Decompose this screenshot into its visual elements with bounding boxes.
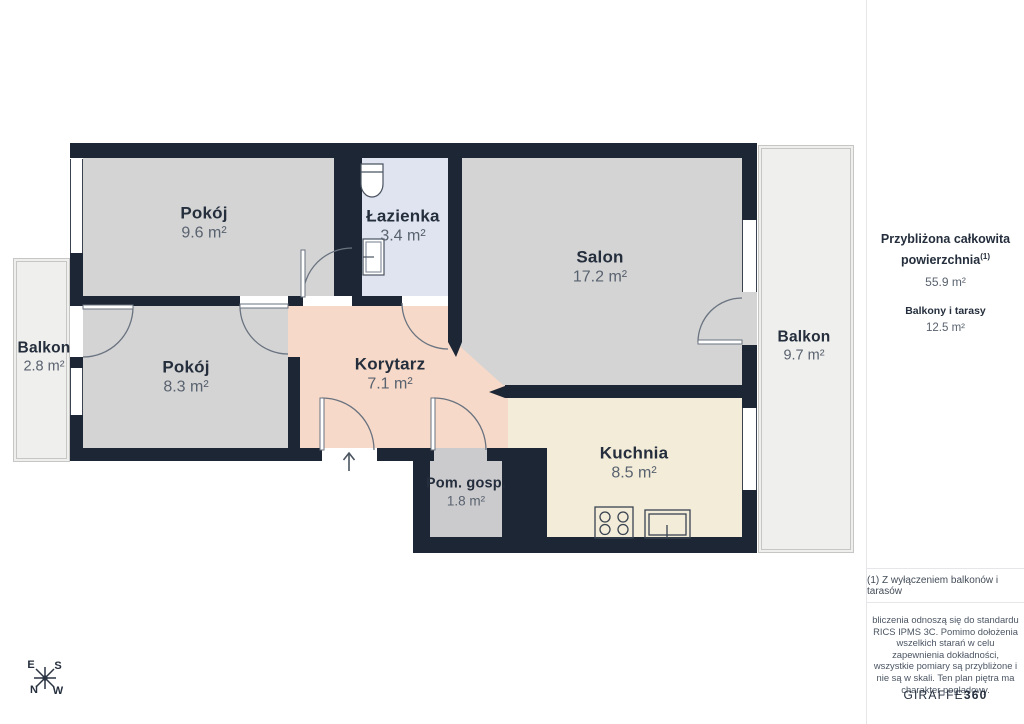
wall-segment bbox=[448, 158, 462, 342]
room-area: 9.6 m² bbox=[180, 224, 227, 244]
room-label-pom-gosp: Pom. gosp. 1.8 m² bbox=[426, 475, 506, 510]
room-label-salon: Salon 17.2 m² bbox=[573, 247, 627, 288]
wall-segment bbox=[288, 357, 300, 448]
door-opening bbox=[240, 296, 288, 306]
door-opening bbox=[70, 306, 83, 357]
room-label-lazienka: Łazienka 3.4 m² bbox=[366, 206, 439, 247]
compass-letter-n: N bbox=[26, 684, 42, 696]
room-name: Łazienka bbox=[366, 206, 439, 227]
wall-segment bbox=[334, 158, 362, 296]
wall-segment bbox=[742, 345, 757, 408]
room-area: 2.8 m² bbox=[18, 358, 71, 376]
room-label-korytarz: Korytarz 7.1 m² bbox=[355, 354, 426, 395]
wall-segment bbox=[502, 448, 547, 540]
room-name: Korytarz bbox=[355, 354, 426, 375]
room-name: Salon bbox=[573, 247, 627, 268]
door-opening bbox=[303, 296, 352, 306]
room-label-balkon-right: Balkon 9.7 m² bbox=[778, 328, 831, 365]
room-name: Pokój bbox=[162, 357, 209, 378]
room-area: 8.5 m² bbox=[600, 464, 668, 484]
total-area-label: Przybliżona całkowita powierzchnia(1) bbox=[879, 231, 1012, 269]
room-area: 8.3 m² bbox=[162, 378, 209, 398]
compass-letter-w: W bbox=[50, 685, 66, 697]
room-name: Pokój bbox=[180, 203, 227, 224]
wall-segment bbox=[413, 537, 742, 553]
wall-segment bbox=[352, 296, 402, 306]
logo-suffix: 360 bbox=[964, 688, 988, 702]
room-label-pokoj-b: Pokój 8.3 m² bbox=[162, 357, 209, 398]
footnote: (1) Z wyłączeniem balkonów i tarasów bbox=[867, 568, 1024, 603]
room-label-balkon-left: Balkon 2.8 m² bbox=[18, 339, 71, 376]
room-label-kuchnia: Kuchnia 8.5 m² bbox=[600, 443, 668, 484]
entrance-opening bbox=[322, 448, 377, 461]
wall-segment bbox=[742, 490, 757, 553]
room-name: Pom. gosp. bbox=[426, 475, 506, 493]
total-area-label-text: Przybliżona całkowita powierzchnia bbox=[881, 232, 1010, 267]
balconies-value: 12.5 m² bbox=[879, 322, 1012, 334]
room-area: 9.7 m² bbox=[778, 347, 831, 365]
room-label-pokoj-a: Pokój 9.6 m² bbox=[180, 203, 227, 244]
wall-segment bbox=[505, 385, 742, 398]
total-area-value: 55.9 m² bbox=[879, 275, 1012, 289]
door-opening bbox=[434, 448, 487, 461]
wall-segment bbox=[70, 357, 83, 368]
window bbox=[70, 159, 83, 253]
footnote-marker: (1) bbox=[980, 252, 990, 261]
room-name: Kuchnia bbox=[600, 443, 668, 464]
giraffe360-logo: GIRAFFE360 bbox=[867, 688, 1024, 702]
wall-segment bbox=[70, 143, 757, 158]
room-name: Balkon bbox=[18, 339, 71, 358]
room-area: 3.4 m² bbox=[366, 227, 439, 247]
wall-segment bbox=[742, 143, 757, 220]
compass-letter-e: E bbox=[23, 659, 39, 671]
wall-segment bbox=[288, 296, 303, 306]
window bbox=[70, 368, 83, 415]
disclaimer: bliczenia odnoszą się do standardu RICS … bbox=[867, 614, 1024, 695]
room-area: 7.1 m² bbox=[355, 375, 426, 395]
wall-segment bbox=[70, 296, 240, 306]
door-opening bbox=[742, 292, 757, 345]
logo-text: GIRAFFE bbox=[903, 688, 963, 702]
summary-sidebar: Przybliżona całkowita powierzchnia(1) 55… bbox=[866, 0, 1024, 724]
floorplan-page: Pokój 9.6 m² Łazienka 3.4 m² Salon 17.2 … bbox=[0, 0, 1024, 724]
room-area: 17.2 m² bbox=[573, 268, 627, 288]
window bbox=[742, 408, 757, 490]
wall-segment bbox=[70, 448, 322, 461]
compass-letter-s: S bbox=[50, 660, 66, 672]
area-summary: Przybliżona całkowita powierzchnia(1) 55… bbox=[867, 231, 1024, 334]
room-area: 1.8 m² bbox=[426, 493, 506, 510]
balconies-label: Balkony i tarasy bbox=[879, 305, 1012, 317]
room-name: Balkon bbox=[778, 328, 831, 347]
window bbox=[742, 220, 757, 292]
door-opening bbox=[402, 296, 448, 306]
